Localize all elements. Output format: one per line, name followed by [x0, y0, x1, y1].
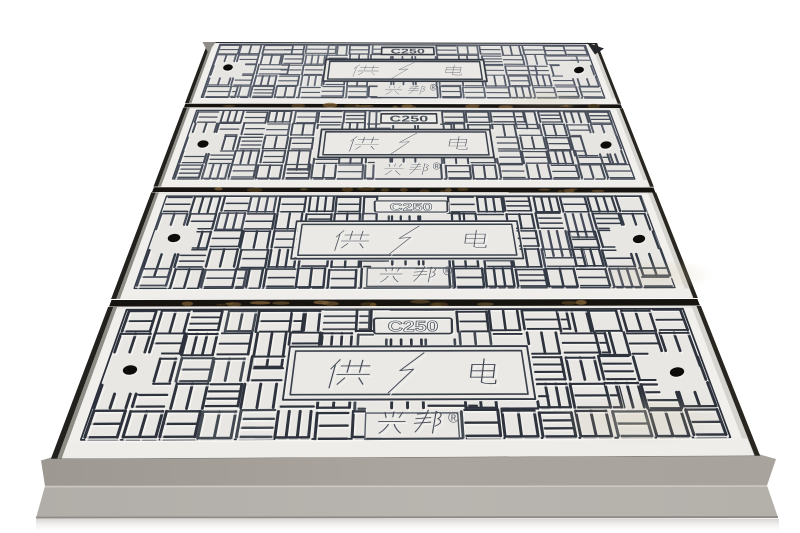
svg-text:®: ®: [443, 264, 452, 278]
svg-text:C250: C250: [389, 202, 432, 214]
svg-text:C250: C250: [389, 114, 428, 124]
svg-text:C250: C250: [387, 317, 438, 334]
svg-text:®: ®: [430, 82, 437, 92]
svg-text:®: ®: [448, 411, 459, 427]
svg-text:C250: C250: [391, 48, 425, 55]
svg-text:®: ®: [433, 162, 441, 173]
